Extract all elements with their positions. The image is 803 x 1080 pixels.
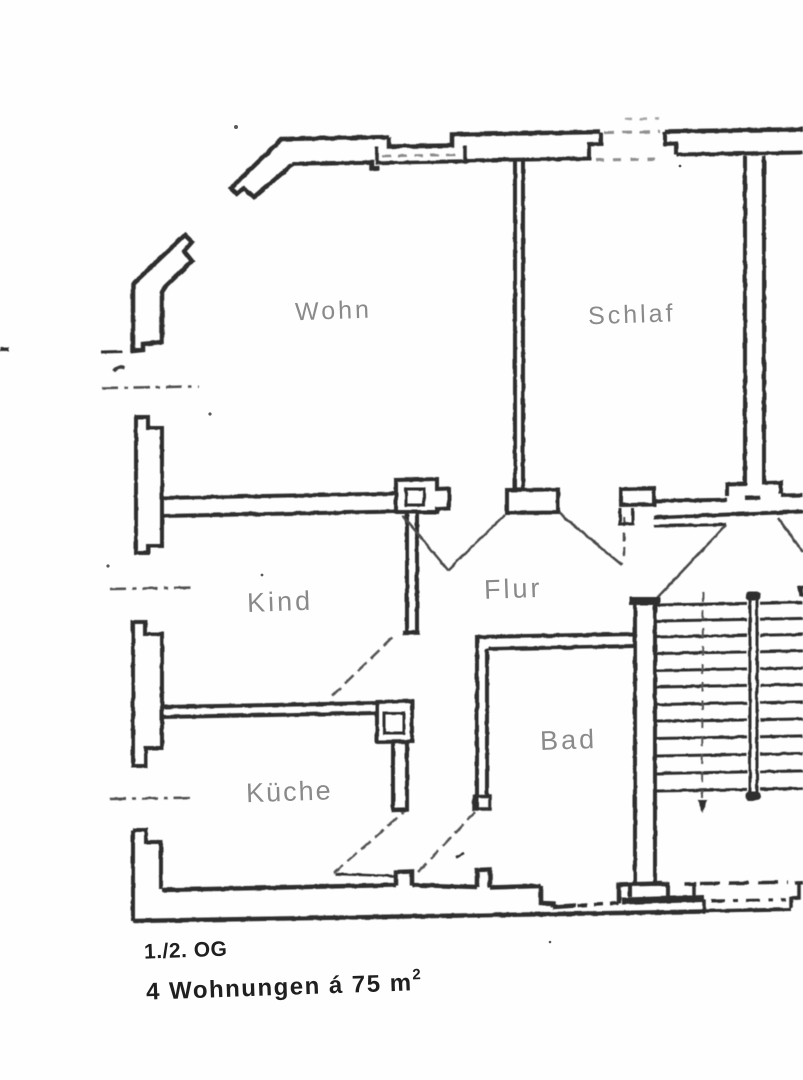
svg-text:Küche: Küche — [245, 775, 333, 808]
svg-text:4 Wohnungen á 75 m2: 4 Wohnungen á 75 m2 — [146, 966, 423, 1006]
svg-text:Bad: Bad — [539, 724, 597, 756]
svg-text:Kind: Kind — [246, 586, 313, 618]
svg-text:Schlaf: Schlaf — [588, 299, 676, 330]
svg-text:Wohn: Wohn — [295, 296, 373, 327]
svg-text:1./2. OG: 1./2. OG — [144, 938, 228, 964]
svg-text:Flur: Flur — [483, 573, 543, 605]
